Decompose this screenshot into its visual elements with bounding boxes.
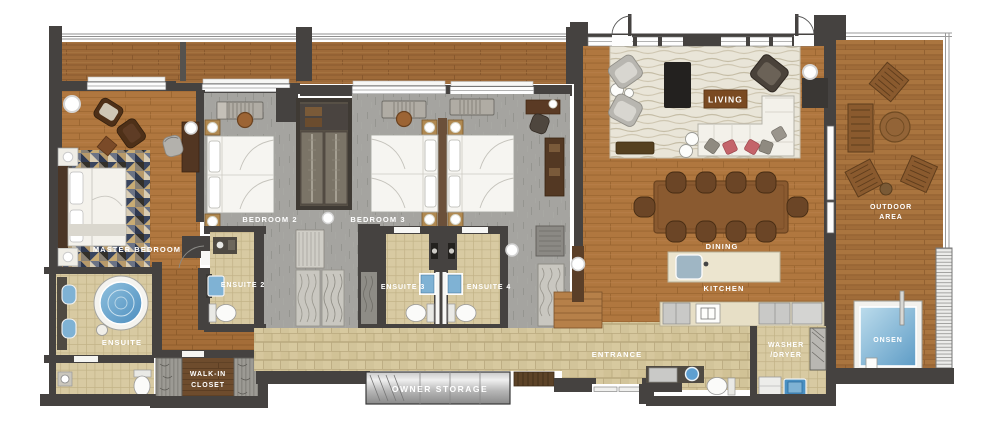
svg-text:BEDROOM 3: BEDROOM 3 <box>350 215 405 224</box>
svg-text:KITCHEN: KITCHEN <box>703 284 744 293</box>
svg-text:WASHER: WASHER <box>768 342 804 349</box>
svg-text:OWNER STORAGE: OWNER STORAGE <box>392 384 488 394</box>
svg-text:ENTRANCE: ENTRANCE <box>592 350 642 359</box>
svg-text:ENSUITE 2: ENSUITE 2 <box>221 282 265 289</box>
svg-text:ENSUITE 4: ENSUITE 4 <box>467 284 511 291</box>
svg-text:AREA: AREA <box>879 214 902 221</box>
svg-text:WALK-IN: WALK-IN <box>190 371 226 378</box>
svg-text:ENSUITE 3: ENSUITE 3 <box>381 284 425 291</box>
svg-text:ONSEN: ONSEN <box>873 337 902 344</box>
svg-text:ENSUITE: ENSUITE <box>102 338 142 347</box>
svg-text:/DRYER: /DRYER <box>770 352 802 359</box>
svg-text:BEDROOM 2: BEDROOM 2 <box>242 215 297 224</box>
svg-text:DINING: DINING <box>706 242 739 251</box>
svg-text:CLOSET: CLOSET <box>191 382 225 389</box>
svg-text:LIVING: LIVING <box>708 95 743 105</box>
svg-text:OUTDOOR: OUTDOOR <box>870 204 912 211</box>
svg-text:MASTER BEDROOM: MASTER BEDROOM <box>93 245 181 254</box>
